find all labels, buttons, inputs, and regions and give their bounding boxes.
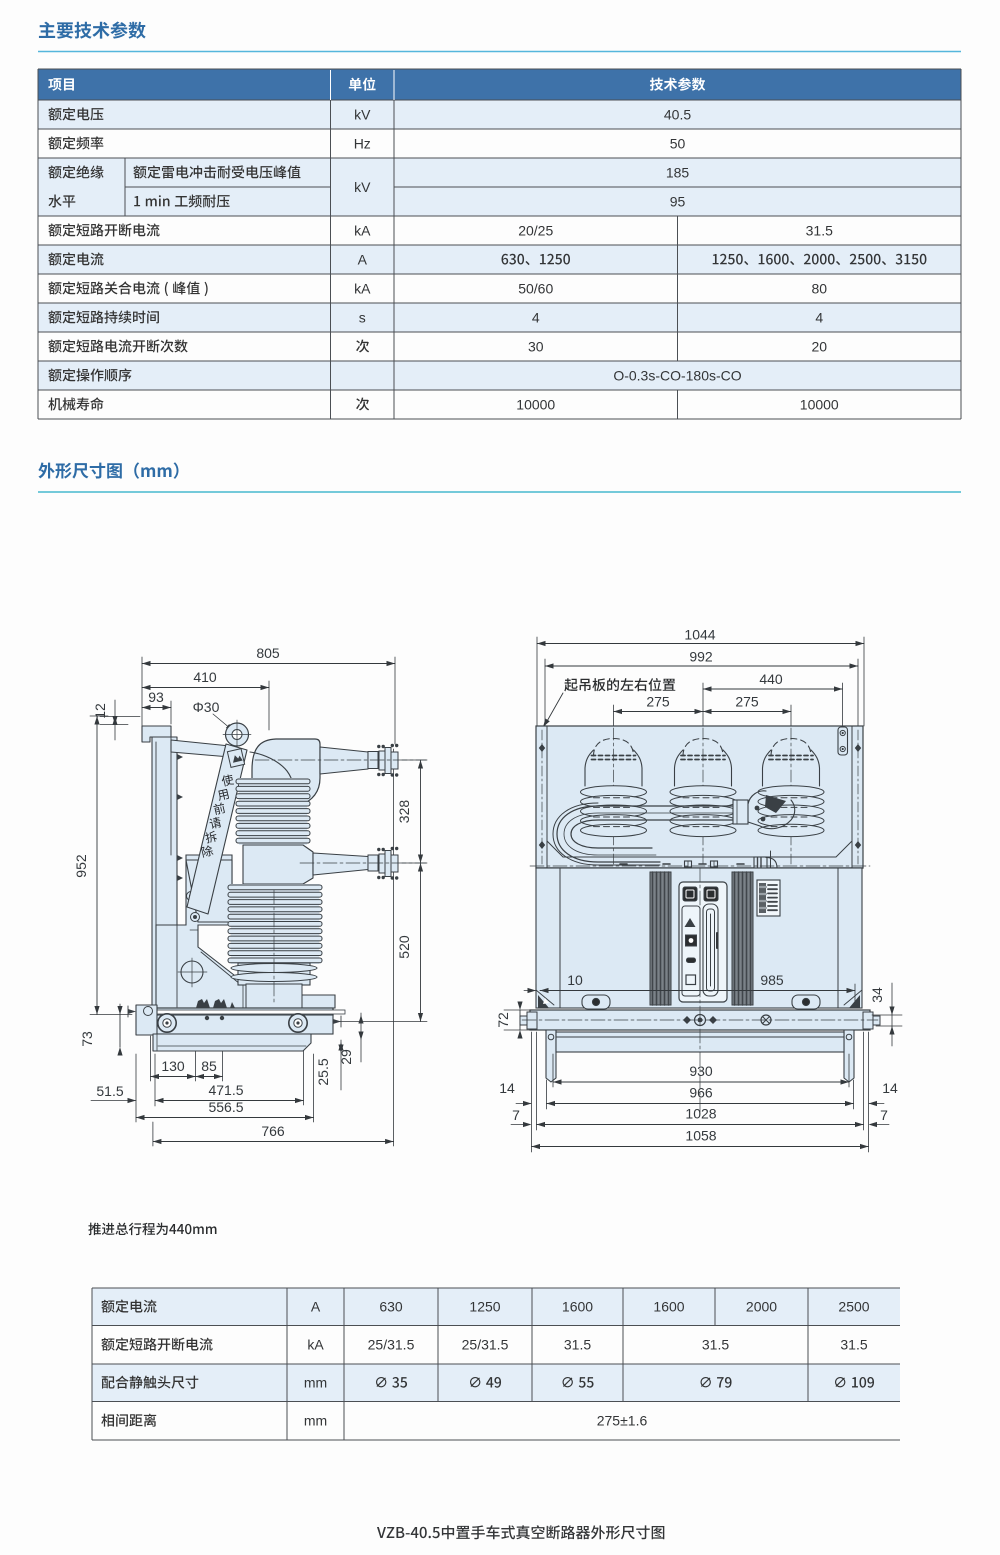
svg-text:1028: 1028 bbox=[685, 1106, 716, 1122]
svg-text:50/60: 50/60 bbox=[518, 280, 553, 296]
svg-text:A: A bbox=[358, 251, 368, 267]
svg-text:31.5: 31.5 bbox=[806, 222, 833, 238]
svg-text:471.5: 471.5 bbox=[208, 1082, 243, 1098]
svg-text:275±1.6: 275±1.6 bbox=[597, 1413, 648, 1429]
svg-text:Φ30: Φ30 bbox=[193, 699, 220, 715]
svg-text:s: s bbox=[359, 309, 366, 325]
svg-text:85: 85 bbox=[201, 1058, 217, 1074]
svg-text:kV: kV bbox=[354, 106, 371, 122]
svg-text:966: 966 bbox=[689, 1085, 713, 1101]
svg-text:Hz: Hz bbox=[354, 135, 371, 151]
svg-text:766: 766 bbox=[261, 1123, 285, 1139]
svg-text:556.5: 556.5 bbox=[208, 1099, 243, 1115]
svg-text:25/31.5: 25/31.5 bbox=[462, 1337, 509, 1353]
svg-text:72: 72 bbox=[495, 1012, 511, 1028]
svg-text:51.5: 51.5 bbox=[96, 1083, 123, 1099]
svg-text:4: 4 bbox=[532, 309, 540, 325]
svg-text:34: 34 bbox=[869, 987, 885, 1003]
svg-text:40.5: 40.5 bbox=[664, 106, 691, 122]
svg-text:93: 93 bbox=[148, 689, 164, 705]
svg-text:A: A bbox=[311, 1299, 321, 1315]
svg-text:25.5: 25.5 bbox=[315, 1058, 331, 1085]
svg-text:29: 29 bbox=[338, 1049, 354, 1065]
svg-text:14: 14 bbox=[882, 1080, 898, 1096]
svg-text:440: 440 bbox=[759, 671, 783, 687]
svg-text:73: 73 bbox=[79, 1031, 95, 1047]
svg-text:kA: kA bbox=[354, 222, 371, 238]
svg-text:2500: 2500 bbox=[838, 1299, 869, 1315]
svg-text:kA: kA bbox=[307, 1337, 324, 1353]
svg-text:1044: 1044 bbox=[684, 627, 715, 643]
svg-text:50: 50 bbox=[670, 135, 686, 151]
svg-text:275: 275 bbox=[735, 694, 759, 710]
svg-text:1250: 1250 bbox=[469, 1299, 500, 1315]
svg-text:10000: 10000 bbox=[516, 396, 555, 412]
svg-text:12: 12 bbox=[92, 703, 108, 719]
svg-text:410: 410 bbox=[193, 669, 217, 685]
svg-text:kA: kA bbox=[354, 280, 371, 296]
svg-text:805: 805 bbox=[256, 645, 280, 661]
svg-text:2000: 2000 bbox=[746, 1299, 777, 1315]
svg-text:31.5: 31.5 bbox=[702, 1337, 729, 1353]
svg-text:20: 20 bbox=[811, 338, 827, 354]
svg-text:mm: mm bbox=[304, 1413, 327, 1429]
svg-text:328: 328 bbox=[396, 800, 412, 824]
svg-text:25/31.5: 25/31.5 bbox=[368, 1337, 415, 1353]
svg-text:14: 14 bbox=[499, 1080, 515, 1096]
svg-text:10: 10 bbox=[567, 972, 583, 988]
svg-text:992: 992 bbox=[689, 649, 713, 665]
svg-text:130: 130 bbox=[161, 1058, 185, 1074]
svg-text:31.5: 31.5 bbox=[564, 1337, 591, 1353]
svg-text:630: 630 bbox=[379, 1299, 403, 1315]
svg-text:275: 275 bbox=[646, 694, 670, 710]
svg-text:7: 7 bbox=[880, 1107, 888, 1123]
svg-text:930: 930 bbox=[689, 1063, 713, 1079]
svg-text:1600: 1600 bbox=[562, 1299, 593, 1315]
svg-text:520: 520 bbox=[396, 935, 412, 959]
svg-text:10000: 10000 bbox=[800, 396, 839, 412]
svg-text:80: 80 bbox=[811, 280, 827, 296]
svg-text:1600: 1600 bbox=[653, 1299, 684, 1315]
svg-text:952: 952 bbox=[73, 854, 89, 878]
svg-text:985: 985 bbox=[760, 972, 784, 988]
svg-text:30: 30 bbox=[528, 338, 544, 354]
svg-text:20/25: 20/25 bbox=[518, 222, 553, 238]
svg-text:185: 185 bbox=[666, 164, 690, 180]
svg-text:4: 4 bbox=[815, 309, 823, 325]
svg-text:1058: 1058 bbox=[685, 1128, 716, 1144]
svg-text:7: 7 bbox=[512, 1107, 520, 1123]
svg-text:95: 95 bbox=[670, 193, 686, 209]
svg-text:31.5: 31.5 bbox=[840, 1337, 867, 1353]
svg-text:kV: kV bbox=[354, 179, 371, 195]
svg-text:mm: mm bbox=[304, 1375, 327, 1391]
svg-text:O-0.3s-CO-180s-CO: O-0.3s-CO-180s-CO bbox=[613, 367, 741, 383]
